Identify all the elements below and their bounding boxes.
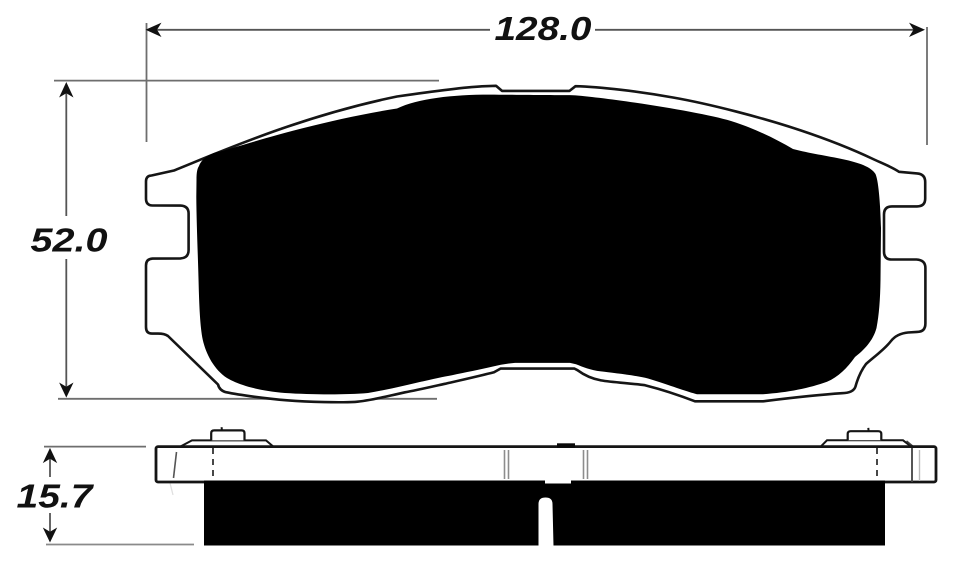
svg-text:15.7: 15.7: [17, 479, 95, 516]
svg-text:128.0: 128.0: [495, 11, 592, 48]
svg-text:52.0: 52.0: [31, 223, 108, 260]
